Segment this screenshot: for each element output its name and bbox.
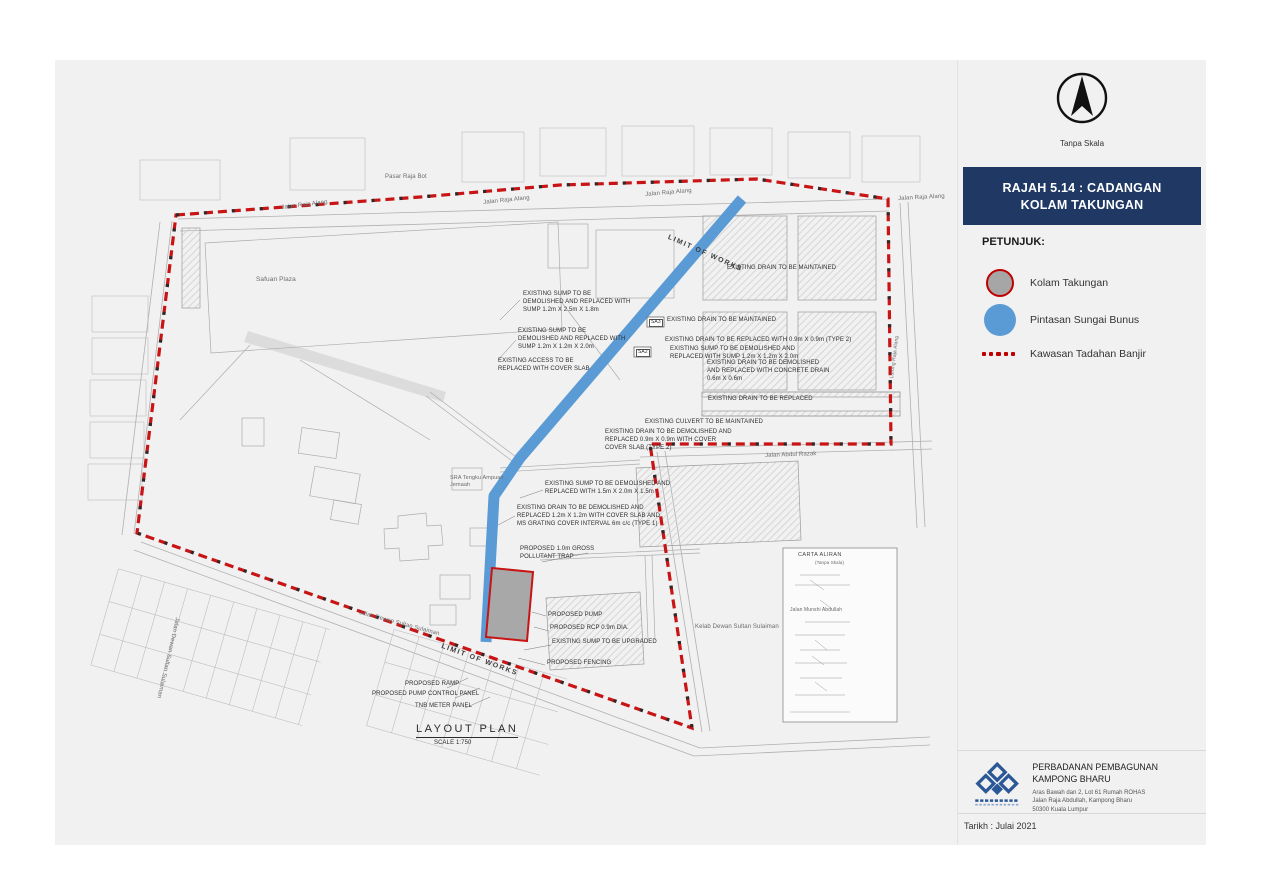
map-annotation: (Tanpa Skala) [815, 560, 844, 566]
map-annotation: EXISTING SUMP TO BE DEMOLISHED AND REPLA… [523, 291, 630, 314]
map-annotation: Jalan Raja Alang [645, 188, 692, 200]
map-annotation: PROPOSED RAMP [405, 681, 459, 689]
map-annotation: Jalan Raja Alang [281, 199, 328, 212]
report-page: Pasar Raja BotJalan Raja AlangJalan Raja… [0, 0, 1262, 892]
map-annotation: EXISTING DRAIN TO BE MAINTAINED [667, 317, 776, 325]
map-annotation: EXISTING SUMP TO BE DEMOLISHED AND REPLA… [545, 481, 670, 497]
map-annotation: Jalan Munshi Abdullah [790, 607, 842, 614]
pond-circle-icon [986, 269, 1014, 297]
north-arrow-icon [1050, 70, 1114, 132]
org-address-line2: Jalan Raja Abdullah, Kampong Bharu [1032, 797, 1200, 805]
map-annotation: Jalan Dewan Sultan Sulaiman [154, 616, 180, 698]
north-arrow-label: Tanpa Skala [958, 139, 1206, 148]
map-annotation: CARTA ALIRAN [798, 552, 842, 559]
map-annotation: Jalan Dewan Sultan Sulaiman [358, 610, 440, 639]
map-annotation: TNB METER PANEL [415, 703, 472, 711]
org-block: PERBADANAN PEMBAGUNAN KAMPONG BHARU Aras… [972, 760, 1200, 814]
sidebar: Tanpa Skala RAJAH 5.14 : CADANGAN KOLAM … [957, 60, 1206, 845]
org-name: PERBADANAN PEMBAGUNAN KAMPONG BHARU [1032, 762, 1200, 786]
map-annotation: EXISTING DRAIN TO BE DEMOLISHED AND REPL… [707, 360, 830, 383]
footer-divider [958, 750, 1206, 751]
map-annotation: LAYOUT PLAN [416, 722, 518, 738]
map-annotation: EXISTING SUMP TO BE DEMOLISHED AND REPLA… [518, 328, 625, 351]
map-annotation: Safuan Plaza [256, 276, 296, 284]
map-annotation: PROPOSED PUMP [548, 612, 602, 620]
map-annotation: LIMIT OF WORKS [440, 642, 519, 678]
map-annotation: SA3 [649, 319, 663, 327]
blue-circle-icon [984, 304, 1016, 336]
legend-label: Pintasan Sungai Bunus [1030, 314, 1139, 326]
legend-item-kolam-takungan: Kolam Takungan [982, 269, 1108, 297]
date-label: Tarikh : Julai 2021 [964, 821, 1037, 831]
map-annotation: EXISTING DRAIN TO BE DEMOLISHED AND REPL… [605, 429, 732, 452]
legend-item-kawasan-tadahan-banjir: Kawasan Tadahan Banjir [982, 348, 1146, 360]
map-annotation: PROPOSED 1.0m GROSS POLLUTANT TRAP [520, 546, 594, 562]
date-divider [958, 813, 1206, 814]
map-annotation: Lorong Raja Alang [889, 335, 901, 378]
map-annotation: Kelab Dewan Sultan Sulaiman [695, 624, 779, 632]
map-annotation: PROPOSED PUMP CONTROL PANEL [372, 691, 479, 699]
org-logo-icon [972, 760, 1022, 812]
legend-heading: PETUNJUK: [982, 236, 1045, 248]
map-annotation: EXISTING DRAIN TO BE DEMOLISHED AND REPL… [517, 505, 660, 528]
map-annotation: Jalan Raja Alang [483, 195, 530, 208]
figure-title-line1: RAJAH 5.14 : CADANGAN [1002, 181, 1161, 195]
org-address-line1: Aras Bawah dan 2, Lot 61 Rumah ROHAS [1032, 789, 1200, 797]
red-dotted-line-icon [982, 352, 1018, 356]
figure-title-line2: KOLAM TAKUNGAN [1021, 198, 1144, 212]
map-annotation: SRA Tengku Ampuan Jemaah [450, 475, 504, 489]
map-annotation: SA2 [636, 349, 650, 357]
map-annotation: EXISTING DRAIN TO BE MAINTAINED [727, 265, 836, 273]
legend-item-pintasan-sungai-bunus: Pintasan Sungai Bunus [982, 304, 1139, 336]
map-annotation: PROPOSED RCP 0.9m DIA. [550, 625, 629, 633]
map-annotation: EXISTING DRAIN TO BE REPLACED WITH 0.9m … [665, 337, 851, 345]
map-annotation: EXISTING SUMP TO BE UPGRADED [552, 639, 657, 647]
map-annotation: EXISTING DRAIN TO BE REPLACED [708, 396, 813, 404]
north-arrow: Tanpa Skala [958, 70, 1206, 148]
map-annotation: SCALE 1:750 [434, 740, 471, 748]
map-annotation: EXISTING CULVERT TO BE MAINTAINED [645, 419, 763, 427]
map-annotation: PROPOSED FENCING [547, 660, 611, 668]
map-annotation: Jalan Abdul Razak [765, 451, 817, 461]
legend-label: Kawasan Tadahan Banjir [1030, 348, 1146, 360]
legend-label: Kolam Takungan [1030, 277, 1108, 289]
map-annotation: Pasar Raja Bot [385, 174, 427, 182]
figure-title-box: RAJAH 5.14 : CADANGAN KOLAM TAKUNGAN [963, 167, 1201, 225]
map-annotation: EXISTING ACCESS TO BE REPLACED WITH COVE… [498, 358, 590, 374]
map-annotation: Jalan Raja Alang [898, 194, 945, 204]
